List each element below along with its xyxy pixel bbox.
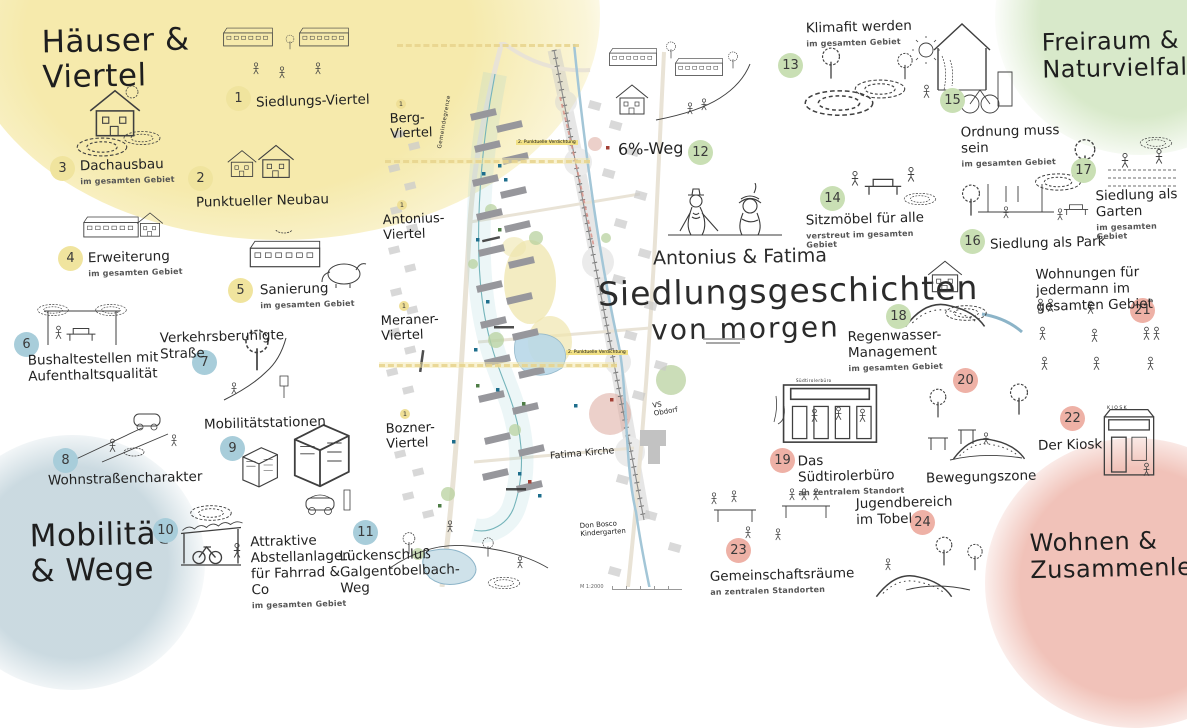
item-20-text: Bewegungszone: [926, 468, 1037, 487]
item-18-text: Regenwasser-Management: [847, 327, 941, 361]
item-16-badge: 16: [960, 229, 985, 254]
item-23-text: Gemeinschaftsräume: [710, 565, 855, 585]
item-11-text: Lückenschluß Galgentobelbach-Weg: [339, 546, 460, 596]
item-17-badge: 17: [1071, 158, 1096, 183]
quarter-marker-number: 1: [402, 302, 406, 310]
quarter-meraner-line2: Viertel: [381, 328, 439, 345]
quarter-label-antonius: Antonius- Viertel: [383, 212, 446, 243]
item-13-badge: 13: [778, 53, 803, 78]
item-21-text: Wohnungen für jedermann im gesamten Gebi…: [1035, 264, 1153, 315]
item-4-sub: im gesamten Gebiet: [88, 267, 188, 279]
item-4-badge: 4: [58, 246, 83, 271]
quarter-divider-1: [397, 44, 579, 47]
item-9-text: Mobilitätstationen: [204, 414, 326, 433]
wohnstrassencharakter-sketch: [72, 410, 190, 464]
item-2-label: Punktueller Neubau: [196, 192, 331, 211]
dachausbau-house-sketch: [70, 84, 170, 166]
item-15-label: Ordnung muss seinim gesamten Gebiet: [960, 122, 1086, 169]
item-10-sub: im gesamten Gebiet: [252, 598, 347, 610]
credit-line-1: [703, 338, 745, 340]
theme-title-mobilitaet-wege: Mobilität & Wege: [29, 517, 169, 589]
item-23-label: Gemeinschaftsräumean zentralen Standorte…: [710, 566, 856, 597]
quarter-berg-line2: Viertel: [390, 126, 433, 142]
sechs-prozent-weg-sketch: [608, 40, 780, 142]
item-15-badge: 15: [940, 88, 965, 113]
theme-mobilitaet-line1: Mobilität: [29, 517, 169, 555]
item-23-sub: an zentralen Standorten: [710, 584, 855, 597]
quarter-marker-antonius: 1: [397, 200, 407, 210]
quarter-marker-number: 1: [403, 410, 407, 418]
item-13-text: Klimafit werden: [806, 18, 912, 37]
item-14-sub: verstreut im gesamten Gebiet: [806, 228, 931, 250]
suedtirolerbuero-sign-text: Südtirolerbüro: [796, 378, 832, 383]
theme-wohnen-line2: Zusammenleben: [1030, 553, 1187, 584]
item-9-label: Mobilitätstationen: [204, 414, 334, 433]
item-5-badge: 5: [228, 278, 253, 303]
item-22-label: Der Kiosk: [1038, 437, 1108, 455]
theme-freiraum-line2: Naturvielfalt: [1042, 53, 1187, 83]
item-13-label: Klimafit werdenim gesamten Gebiet: [806, 18, 922, 48]
item-6-label: Bushaltestellen mit Aufenthaltsqualität: [28, 350, 164, 385]
item-18-badge: 18: [886, 304, 911, 329]
quarter-marker-number: 1: [399, 100, 403, 108]
quarter-label-meraner: Meraner- Viertel: [381, 313, 440, 344]
item-10-text: Attraktive Abstellanlagen für Fahrrad & …: [250, 533, 351, 598]
item-11-label: Lückenschluß Galgentobelbach-Weg: [339, 547, 455, 598]
item-18-sub: im gesamten Gebiet: [848, 360, 1013, 374]
quarter-divider-3: [379, 364, 617, 367]
item-11-badge: 11: [353, 520, 378, 545]
theme-mobilitaet-line2: & Wege: [30, 551, 170, 589]
item-3-sub: im gesamten Gebiet: [80, 175, 175, 187]
klimafit-werden-sketch: [790, 36, 942, 128]
item-17-label: Siedlung als Gartenim gesamten Gebiet: [1095, 187, 1187, 242]
item-20-label: Bewegungszone: [926, 468, 1041, 487]
poster-main-title: Siedlungsgeschichten: [598, 269, 894, 313]
item-12-label: 6%-Weg: [618, 139, 688, 160]
quarter-antonius-line2: Viertel: [383, 226, 445, 243]
item-14-badge: 14: [820, 186, 845, 211]
item-14-label: Sitzmöbel für alleverstreut im gesamten …: [806, 210, 932, 250]
item-8-badge: 8: [53, 448, 78, 473]
item-22-text: Der Kiosk: [1038, 436, 1103, 454]
item-23-badge: 23: [726, 538, 751, 563]
theme-wohnen-line1: Wohnen &: [1029, 526, 1187, 557]
theme-haeuser-line1: Häuser &: [41, 22, 190, 60]
theme-freiraum-line1: Freiraum &: [1041, 26, 1187, 56]
quarter-marker-number: 1: [400, 201, 404, 209]
quarter-label-bozner: Bozner- Viertel: [386, 421, 436, 452]
item-5-label: Sanierungim gesamten Gebiet: [260, 281, 356, 311]
item-2-badge: 2: [188, 166, 213, 191]
antonius-fatima-characters-sketch: [662, 183, 788, 245]
punktueller-neubau-sketch: [224, 138, 314, 184]
kiosk-sign-text: KIOSK: [1107, 406, 1128, 411]
ordnung-muss-sein-sketch: [928, 16, 1018, 126]
item-19-text: Das Südtirolerbüro: [797, 453, 894, 486]
item-12-text: 6%-Weg: [618, 138, 684, 159]
item-2-text: Punktueller Neubau: [196, 191, 329, 210]
jugendbereich-tobel-sketch: [866, 534, 992, 604]
theme-title-wohnen-zusammenleben: Wohnen & Zusammenleben: [1029, 526, 1187, 584]
item-24-text: Jugendbereich im Tobel: [856, 494, 953, 528]
item-4-label: Erweiterungim gesamten Gebiet: [88, 249, 189, 279]
item-21-label: Wohnungen für jedermann im gesamten Gebi…: [1035, 264, 1178, 315]
item-1-label: Siedlungs-Viertel: [256, 92, 376, 111]
map-label-verdichtung-1: 2. Punktuelle Verdichtung: [516, 140, 578, 145]
item-4-text: Erweiterung: [88, 248, 170, 266]
theme-title-freiraum-naturvielfalt: Freiraum & Naturvielfalt: [1041, 26, 1187, 83]
item-5-text: Sanierung: [260, 280, 329, 298]
item-16-text: Siedlung als Park: [990, 234, 1106, 253]
item-6-text: Bushaltestellen mit Aufenthaltsqualität: [28, 349, 159, 384]
abstellanlagen-sketch: [176, 502, 256, 594]
suedtirolerbuero-sketch: [772, 372, 894, 452]
item-20-badge: 20: [953, 368, 978, 393]
item-1-text: Siedlungs-Viertel: [256, 92, 370, 111]
siedlungs-viertel-sketch: [222, 20, 354, 90]
item-10-label: Attraktive Abstellanlagen für Fahrrad & …: [250, 533, 347, 611]
item-17-text: Siedlung als Garten: [1095, 186, 1177, 220]
quarter-marker-bozner: 1: [400, 409, 410, 419]
item-18-label: Regenwasser-Managementim gesamten Gebiet: [847, 326, 1013, 374]
bushaltestelle-sketch: [36, 303, 128, 349]
map-label-verdichtung-2: 2. Punktuelle Verdichtung: [566, 350, 628, 355]
item-15-text: Ordnung muss sein: [960, 122, 1059, 156]
item-7-label: Verkehrsberuhigte Straße: [160, 329, 266, 364]
quarter-marker-berg: 1: [396, 99, 406, 109]
item-8-label: Wohnstraßencharakter: [48, 470, 183, 489]
quarter-marker-meraner: 1: [399, 301, 409, 311]
item-3-badge: 3: [50, 156, 75, 181]
item-3-text: Dachausbau: [80, 156, 164, 174]
map-scale-text: M 1:2000: [580, 584, 604, 590]
credit-line-2: [706, 342, 740, 344]
item-24-label: Jugendbereich im Tobel: [856, 495, 942, 529]
item-19-label: Das Südtirolerbüroan zentralem Standort: [797, 452, 913, 498]
sitzmoebel-sketch: [836, 154, 944, 212]
item-1-badge: 1: [226, 86, 251, 111]
bewegungszone-sketch: [914, 380, 1036, 468]
item-19-badge: 19: [770, 448, 795, 473]
item-16-label: Siedlung als Park: [990, 234, 1110, 253]
item-8-text: Wohnstraßencharakter: [48, 469, 203, 489]
item-10-badge: 10: [153, 518, 178, 543]
item-9-badge: 9: [220, 436, 245, 461]
poster-canvas: { "title": { "names": "Antonius & Fatima…: [0, 0, 1187, 608]
item-14-text: Sitzmöbel für alle: [806, 210, 925, 229]
item-17-sub: im gesamten Gebiet: [1096, 221, 1187, 242]
item-3-label: Dachausbauim gesamten Gebiet: [80, 157, 176, 187]
item-5-sub: im gesamten Gebiet: [260, 299, 355, 311]
quarter-divider-2: [385, 160, 590, 163]
item-22-badge: 22: [1060, 406, 1085, 431]
map-scale-bar: [612, 586, 682, 590]
quarter-bozner-line2: Viertel: [386, 436, 436, 452]
item-12-badge: 12: [688, 140, 713, 165]
quarter-label-berg: Berg- Viertel: [390, 111, 433, 142]
